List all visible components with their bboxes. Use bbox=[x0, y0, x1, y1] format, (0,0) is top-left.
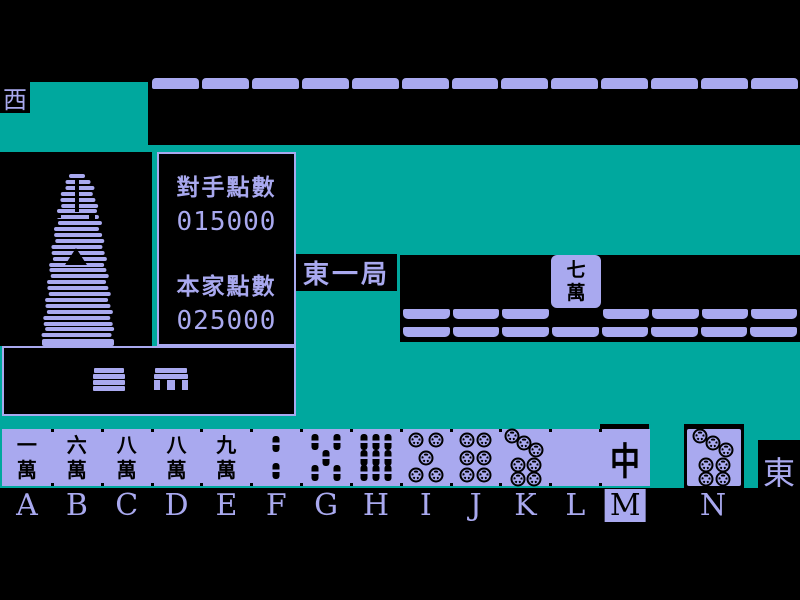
tile-back-segment bbox=[403, 309, 450, 319]
letters-band: ABCDEFGHIJKLMN bbox=[0, 488, 800, 524]
tower-slat bbox=[55, 239, 104, 243]
tower-notch bbox=[65, 248, 87, 265]
player-hand-row: 一萬六萬八萬八萬九萬中 bbox=[2, 429, 650, 486]
tile-face-9-man: 九萬 bbox=[201, 429, 251, 486]
circle-pip bbox=[408, 433, 423, 448]
tile-back-segment bbox=[502, 327, 549, 337]
tile-letter-J[interactable]: J bbox=[470, 489, 482, 522]
hand-tile-D-8-man[interactable]: 八萬 bbox=[152, 429, 202, 486]
tile-back-segment bbox=[202, 78, 249, 89]
tile-back-segment bbox=[403, 327, 450, 337]
tile-letter-N[interactable]: N bbox=[700, 489, 726, 522]
opponent-discard-face: 七 萬 bbox=[551, 255, 601, 308]
hand-tile-J-6-circle[interactable] bbox=[451, 429, 501, 486]
tile-back-segment bbox=[702, 309, 748, 319]
tower-slat bbox=[54, 233, 102, 237]
tower-eye-right bbox=[89, 215, 95, 220]
circle-pip bbox=[529, 443, 544, 458]
tower-slat bbox=[47, 280, 107, 284]
hand-tile-M-red-dragon[interactable]: 中 bbox=[600, 429, 650, 486]
tile-back-segment bbox=[552, 327, 599, 337]
player-score-label: 本家點數 bbox=[177, 267, 277, 301]
drawn-tile[interactable] bbox=[687, 429, 741, 486]
bamboo-stick bbox=[384, 434, 391, 450]
opponent-rack-row2 bbox=[403, 327, 797, 337]
melds-box bbox=[2, 346, 296, 416]
opponent-portrait-box bbox=[0, 152, 152, 346]
opponent-score-value: 015000 bbox=[177, 207, 277, 237]
bamboo-stick bbox=[360, 450, 367, 466]
tower-eye-left bbox=[55, 213, 61, 218]
hand-tile-C-8-man[interactable]: 八萬 bbox=[102, 429, 152, 486]
tower-slat bbox=[57, 221, 101, 225]
bamboo-stick bbox=[360, 434, 367, 450]
tile-back-segment bbox=[750, 327, 797, 337]
circle-pip bbox=[408, 467, 423, 482]
tile-letter-H[interactable]: H bbox=[363, 489, 389, 522]
tile-back-segment bbox=[652, 309, 698, 319]
circle-pip bbox=[428, 467, 443, 482]
tower-slat bbox=[47, 286, 108, 290]
circle-pip bbox=[526, 471, 541, 486]
hand-tile-K-7-circle[interactable] bbox=[500, 429, 550, 486]
opponent-rack-row1-right bbox=[603, 309, 797, 319]
bamboo-stick bbox=[372, 465, 379, 481]
tower-slat bbox=[45, 327, 115, 331]
round-label: 東一局 bbox=[303, 254, 390, 291]
tower-slat bbox=[46, 310, 112, 314]
bamboo-stick bbox=[360, 465, 367, 481]
tile-back-segment bbox=[452, 78, 499, 89]
tile-letter-L[interactable]: L bbox=[565, 489, 585, 522]
bamboo-stick bbox=[372, 434, 379, 450]
tile-back-segment bbox=[551, 78, 598, 89]
tile-letter-D[interactable]: D bbox=[165, 489, 189, 522]
opponent-wall-row bbox=[152, 78, 798, 89]
tile-back-segment bbox=[501, 78, 548, 89]
circle-pip bbox=[476, 467, 491, 482]
opponent-discard-tile: 七 萬 bbox=[551, 255, 601, 308]
circle-pip bbox=[718, 443, 733, 458]
tile-back-segment bbox=[603, 309, 649, 319]
tile-face-6-man: 六萬 bbox=[52, 429, 102, 486]
circle-pip bbox=[460, 467, 475, 482]
hand-tile-G-5-bamboo[interactable] bbox=[301, 429, 351, 486]
circle-pip bbox=[460, 433, 475, 448]
east-seat-indicator: 東 bbox=[758, 440, 800, 524]
tile-face-1-man: 一萬 bbox=[2, 429, 52, 486]
top-left-black-band bbox=[0, 62, 148, 82]
tile-back-segment bbox=[352, 78, 399, 89]
bamboo-stick bbox=[333, 434, 340, 450]
circle-pip bbox=[418, 450, 433, 465]
bamboo-stick bbox=[333, 465, 340, 481]
tile-letter-K[interactable]: K bbox=[514, 489, 536, 522]
hand-tile-A-1-man[interactable]: 一萬 bbox=[2, 429, 52, 486]
game-screen: 西 對手點數 015000 本家點數 025000 東一局 七 萬 bbox=[0, 0, 800, 600]
tile-back-segment bbox=[701, 78, 748, 89]
tile-letter-B[interactable]: B bbox=[66, 489, 88, 522]
tile-back-segment bbox=[602, 327, 649, 337]
round-indicator: 東一局 bbox=[296, 254, 397, 291]
tower-slat bbox=[50, 274, 109, 278]
tower-slat bbox=[54, 227, 100, 231]
tile-back-segment bbox=[302, 78, 349, 89]
opponent-hand-area: 七 萬 bbox=[400, 255, 800, 342]
tile-letter-G[interactable]: G bbox=[314, 489, 338, 522]
player-score-value: 025000 bbox=[177, 306, 277, 336]
tower-slat bbox=[41, 333, 112, 337]
tile-face-red-dragon: 中 bbox=[600, 422, 650, 493]
tile-back-segment bbox=[651, 78, 698, 89]
bamboo-stick bbox=[322, 450, 329, 466]
tile-back-segment bbox=[453, 309, 500, 319]
bamboo-stick bbox=[384, 450, 391, 466]
tile-letter-E[interactable]: E bbox=[215, 489, 237, 522]
tower-slat bbox=[65, 186, 94, 190]
tile-face-8-man: 八萬 bbox=[152, 429, 202, 486]
tile-letter-A[interactable]: A bbox=[16, 489, 38, 522]
circle-pip bbox=[698, 471, 713, 486]
tower-detail-line bbox=[75, 178, 79, 212]
tower-slat bbox=[48, 292, 111, 296]
circle-pip bbox=[428, 433, 443, 448]
tile-back-segment bbox=[651, 327, 698, 337]
hand-tile-L-white-dragon[interactable] bbox=[550, 429, 600, 486]
circle-pip bbox=[716, 471, 731, 486]
tower-slat bbox=[49, 268, 106, 272]
tile-back-segment bbox=[751, 78, 798, 89]
tile-letter-M[interactable]: M bbox=[605, 489, 646, 522]
opponent-wall-area bbox=[148, 62, 800, 145]
bamboo-stick bbox=[312, 434, 319, 450]
bamboo-stick bbox=[372, 450, 379, 466]
tower-slat bbox=[45, 304, 110, 308]
circle-pip bbox=[476, 433, 491, 448]
tile-table-icon bbox=[154, 368, 188, 390]
circle-pip bbox=[510, 471, 525, 486]
tile-stack-icon bbox=[93, 368, 125, 392]
tile-back-segment bbox=[402, 78, 449, 89]
tile-letter-F[interactable]: F bbox=[266, 489, 287, 522]
tile-letter-I[interactable]: I bbox=[420, 489, 432, 522]
hand-tile-F-2-bamboo[interactable] bbox=[251, 429, 301, 486]
score-panel: 對手點數 015000 本家點數 025000 bbox=[157, 152, 296, 346]
tile-back-segment bbox=[502, 309, 549, 319]
tile-back-segment bbox=[152, 78, 199, 89]
circle-pip bbox=[460, 450, 475, 465]
tile-back-segment bbox=[453, 327, 500, 337]
tower-slat bbox=[61, 204, 99, 208]
tower-slat bbox=[44, 322, 113, 326]
west-seat-indicator: 西 bbox=[0, 82, 30, 113]
bamboo-stick bbox=[312, 465, 319, 481]
tile-letter-C[interactable]: C bbox=[115, 489, 138, 522]
circle-pip bbox=[476, 450, 491, 465]
bamboo-stick bbox=[273, 436, 280, 452]
opponent-rack-row1-left bbox=[403, 309, 549, 319]
tower-slat bbox=[45, 298, 109, 302]
hand-tile-H-9-bamboo[interactable] bbox=[351, 429, 401, 486]
tile-back-segment bbox=[701, 327, 748, 337]
tower-slat bbox=[43, 316, 110, 320]
tile-face-8-man: 八萬 bbox=[102, 429, 152, 486]
hand-tile-B-6-man[interactable]: 六萬 bbox=[52, 429, 102, 486]
tile-back-segment bbox=[751, 309, 797, 319]
bamboo-stick bbox=[384, 465, 391, 481]
bamboo-stick bbox=[273, 463, 280, 479]
hand-tile-I-5-circle[interactable] bbox=[401, 429, 451, 486]
east-seat-label: 東 bbox=[763, 448, 795, 494]
hand-tile-E-9-man[interactable]: 九萬 bbox=[201, 429, 251, 486]
west-seat-label: 西 bbox=[3, 80, 27, 115]
tile-back-segment bbox=[601, 78, 648, 89]
tile-back-segment bbox=[252, 78, 299, 89]
opponent-score-label: 對手點數 bbox=[177, 168, 277, 202]
